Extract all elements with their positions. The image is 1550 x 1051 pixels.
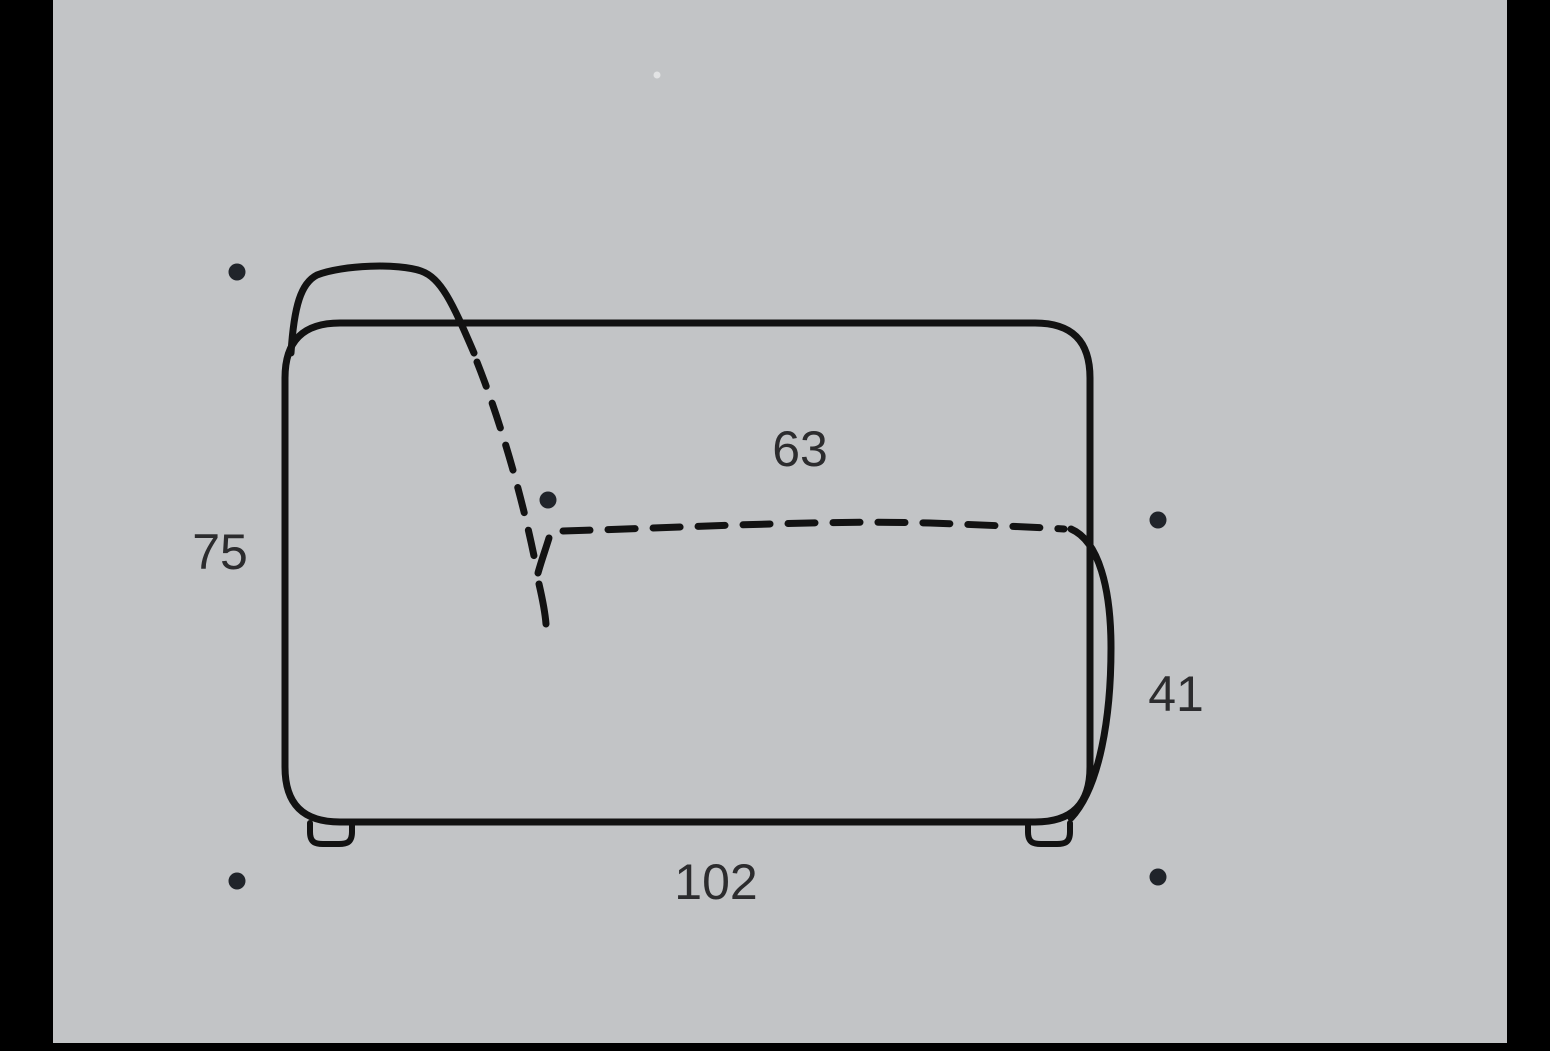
front-leg — [310, 823, 352, 844]
armrest-outline — [291, 266, 474, 353]
faint-speck — [654, 72, 661, 79]
dimension-label-seat-height: 41 — [1138, 668, 1214, 720]
dimension-label-overall-height: 75 — [182, 526, 258, 578]
marker-seat-junction — [540, 492, 557, 509]
sofa-body-outline — [285, 323, 1090, 822]
seat-level-dashed-line — [563, 522, 1064, 531]
back-leg — [1028, 823, 1070, 844]
seat-junction-dash-down — [539, 584, 546, 624]
armrest-fold-dashed-line — [477, 362, 537, 571]
corner-marker-top-left — [229, 264, 246, 281]
seat-junction-dash-up — [538, 538, 549, 573]
dimension-label-seat-depth: 63 — [762, 423, 838, 475]
corner-marker-bottom-right — [1150, 869, 1167, 886]
dimension-diagram-page: 75 63 41 102 — [0, 0, 1550, 1051]
dimension-label-overall-depth: 102 — [664, 856, 768, 908]
marker-right — [1150, 512, 1167, 529]
corner-marker-bottom-left — [229, 873, 246, 890]
